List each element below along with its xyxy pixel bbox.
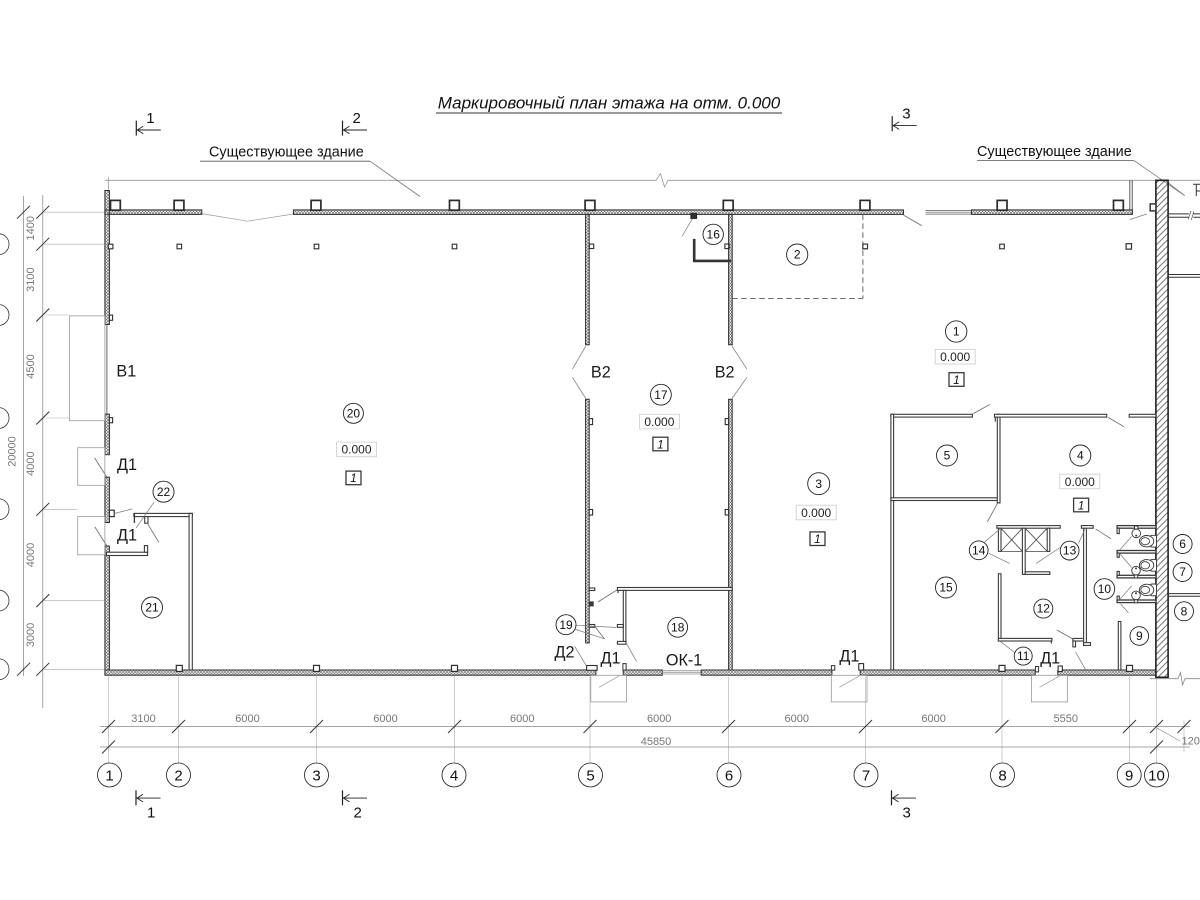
svg-text:19: 19 xyxy=(559,618,573,632)
svg-text:2: 2 xyxy=(794,248,801,262)
svg-text:4: 4 xyxy=(450,767,458,784)
svg-text:9: 9 xyxy=(1136,629,1143,643)
svg-text:Д1: Д1 xyxy=(117,526,137,544)
svg-text:Д2: Д2 xyxy=(555,643,575,661)
svg-text:14: 14 xyxy=(972,543,986,557)
svg-text:3000: 3000 xyxy=(25,623,37,647)
svg-text:Д1: Д1 xyxy=(601,649,621,667)
svg-text:16: 16 xyxy=(707,228,721,242)
svg-text:10: 10 xyxy=(1098,582,1112,596)
svg-text:11: 11 xyxy=(1017,649,1030,663)
svg-text:5: 5 xyxy=(586,767,594,784)
svg-text:Д1: Д1 xyxy=(839,648,859,666)
svg-text:1: 1 xyxy=(814,534,820,546)
svg-text:6000: 6000 xyxy=(647,713,671,725)
svg-text:ОК-1: ОК-1 xyxy=(666,652,702,670)
svg-text:1: 1 xyxy=(953,375,959,387)
svg-text:6000: 6000 xyxy=(373,713,397,725)
svg-text:1400: 1400 xyxy=(25,216,37,240)
svg-text:8: 8 xyxy=(998,767,1006,784)
svg-text:5: 5 xyxy=(944,449,951,463)
svg-text:4: 4 xyxy=(1077,449,1084,463)
svg-text:8: 8 xyxy=(1181,604,1188,618)
svg-text:1: 1 xyxy=(146,110,154,127)
svg-text:1: 1 xyxy=(657,439,663,451)
svg-text:1: 1 xyxy=(1078,500,1084,512)
svg-text:13: 13 xyxy=(1063,544,1077,558)
svg-text:20000: 20000 xyxy=(7,436,19,467)
svg-text:3: 3 xyxy=(903,804,911,821)
svg-text:21: 21 xyxy=(145,601,159,615)
svg-text:6: 6 xyxy=(1179,537,1186,551)
svg-text:В2: В2 xyxy=(591,363,611,381)
svg-text:20: 20 xyxy=(347,406,361,420)
svg-text:18: 18 xyxy=(671,620,685,634)
svg-text:2: 2 xyxy=(353,110,361,127)
svg-text:Д1: Д1 xyxy=(1040,650,1060,668)
svg-text:15: 15 xyxy=(939,581,953,595)
svg-text:5550: 5550 xyxy=(1054,713,1078,725)
svg-text:Существующее здание: Существующее здание xyxy=(977,144,1132,160)
svg-text:45850: 45850 xyxy=(641,736,672,748)
svg-text:3: 3 xyxy=(815,477,822,491)
svg-text:6000: 6000 xyxy=(235,713,259,725)
svg-text:7: 7 xyxy=(1179,565,1186,579)
svg-text:6: 6 xyxy=(725,767,733,784)
svg-text:1: 1 xyxy=(953,325,960,339)
svg-text:Маркировочный план этажа на от: Маркировочный план этажа на отм. 0.000 xyxy=(438,94,781,113)
svg-text:4000: 4000 xyxy=(25,451,37,475)
svg-text:6000: 6000 xyxy=(785,713,809,725)
svg-text:0.000: 0.000 xyxy=(644,415,674,429)
svg-text:0.000: 0.000 xyxy=(341,443,371,457)
svg-text:1200: 1200 xyxy=(1182,736,1200,748)
svg-text:3: 3 xyxy=(902,105,910,122)
svg-text:3100: 3100 xyxy=(131,713,155,725)
svg-text:0.000: 0.000 xyxy=(940,350,970,364)
svg-text:Существующее здание: Существующее здание xyxy=(209,145,364,161)
svg-text:12: 12 xyxy=(1037,602,1051,616)
svg-text:1: 1 xyxy=(147,804,155,821)
svg-text:3: 3 xyxy=(312,767,320,784)
svg-text:6000: 6000 xyxy=(510,713,534,725)
svg-text:Д1: Д1 xyxy=(117,456,137,474)
svg-text:4500: 4500 xyxy=(25,354,37,378)
svg-text:22: 22 xyxy=(157,485,171,499)
svg-text:7: 7 xyxy=(862,767,870,784)
svg-text:6000: 6000 xyxy=(921,713,945,725)
svg-text:1: 1 xyxy=(350,473,356,485)
svg-text:0.000: 0.000 xyxy=(1065,475,1095,489)
svg-text:В2: В2 xyxy=(715,363,735,381)
svg-text:10: 10 xyxy=(1148,767,1165,784)
svg-text:17: 17 xyxy=(654,388,668,402)
svg-text:3100: 3100 xyxy=(25,267,37,291)
svg-text:В1: В1 xyxy=(116,363,136,381)
svg-text:2: 2 xyxy=(174,767,182,784)
svg-text:4000: 4000 xyxy=(25,543,37,567)
svg-text:9: 9 xyxy=(1125,767,1133,784)
svg-text:0.000: 0.000 xyxy=(801,506,831,520)
svg-text:2: 2 xyxy=(354,804,362,821)
svg-text:1: 1 xyxy=(105,767,113,784)
